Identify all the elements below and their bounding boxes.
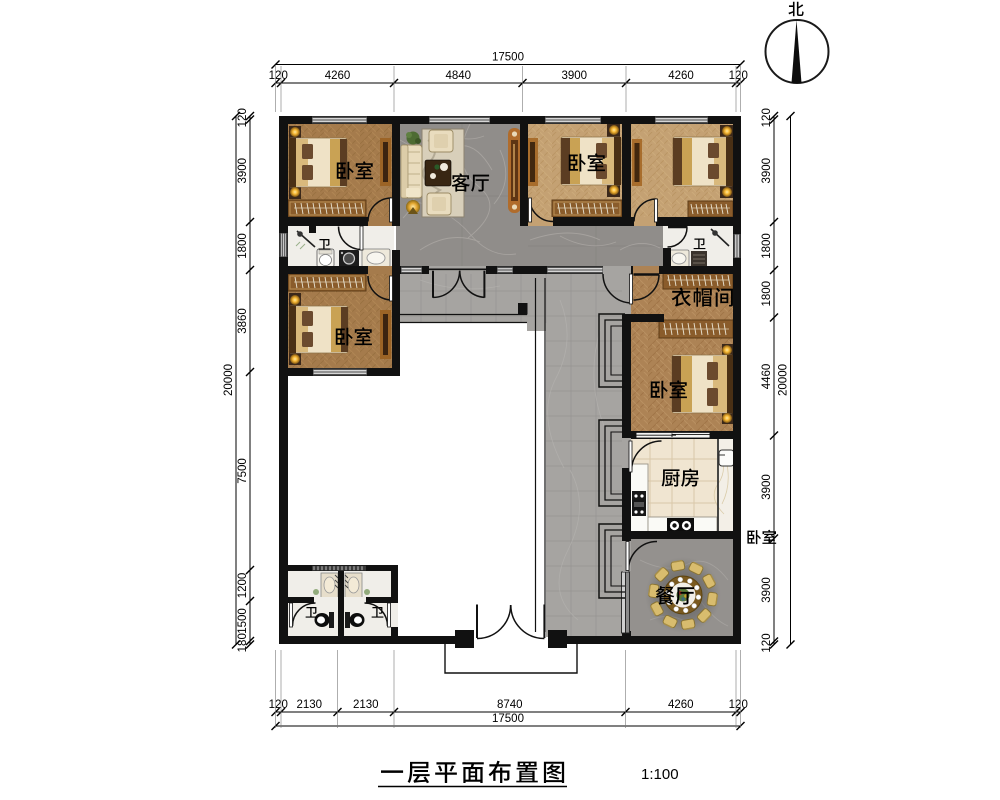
svg-text:4840: 4840 <box>445 70 471 82</box>
svg-text:1800: 1800 <box>761 233 773 259</box>
svg-text:7500: 7500 <box>237 458 249 484</box>
svg-text:1200: 1200 <box>237 573 249 599</box>
svg-text:180: 180 <box>237 633 249 652</box>
svg-text:1800: 1800 <box>761 281 773 307</box>
svg-text:120: 120 <box>269 70 288 82</box>
svg-text:3860: 3860 <box>237 308 249 334</box>
svg-text:8740: 8740 <box>497 699 523 711</box>
svg-text:4260: 4260 <box>668 70 694 82</box>
svg-text:4460: 4460 <box>761 364 773 390</box>
svg-text:120: 120 <box>729 699 748 711</box>
svg-text:17500: 17500 <box>492 52 524 64</box>
svg-text:3900: 3900 <box>761 577 773 603</box>
svg-text:3900: 3900 <box>561 70 587 82</box>
svg-text:20000: 20000 <box>223 364 235 396</box>
svg-text:4260: 4260 <box>668 699 694 711</box>
svg-text:3900: 3900 <box>237 158 249 184</box>
svg-text:4260: 4260 <box>325 70 351 82</box>
svg-text:120: 120 <box>237 108 249 127</box>
svg-text:120: 120 <box>761 108 773 127</box>
svg-text:20000: 20000 <box>778 364 790 396</box>
svg-text:120: 120 <box>269 699 288 711</box>
svg-text:3900: 3900 <box>761 474 773 500</box>
svg-text:3900: 3900 <box>761 158 773 184</box>
svg-text:120: 120 <box>729 70 748 82</box>
svg-text:1:100: 1:100 <box>641 766 679 783</box>
svg-text:1800: 1800 <box>237 233 249 259</box>
svg-text:2130: 2130 <box>353 699 379 711</box>
svg-text:2130: 2130 <box>296 699 322 711</box>
svg-text:120: 120 <box>761 633 773 652</box>
svg-text:17500: 17500 <box>492 713 524 725</box>
svg-text:1500: 1500 <box>237 608 249 634</box>
